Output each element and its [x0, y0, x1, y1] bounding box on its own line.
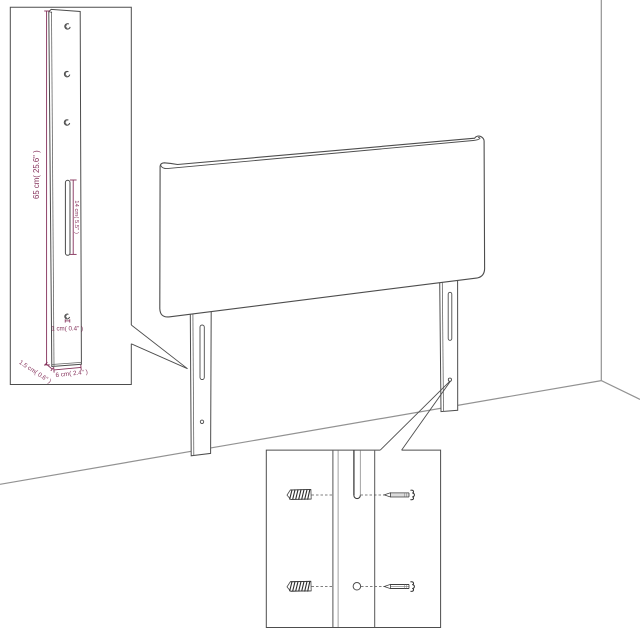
svg-text:14 cm( 5.5" ): 14 cm( 5.5" ) [73, 200, 79, 234]
svg-text:65 cm( 25.6" ): 65 cm( 25.6" ) [32, 150, 41, 199]
svg-text:1 cm( 0.4" ): 1 cm( 0.4" ) [51, 326, 83, 333]
